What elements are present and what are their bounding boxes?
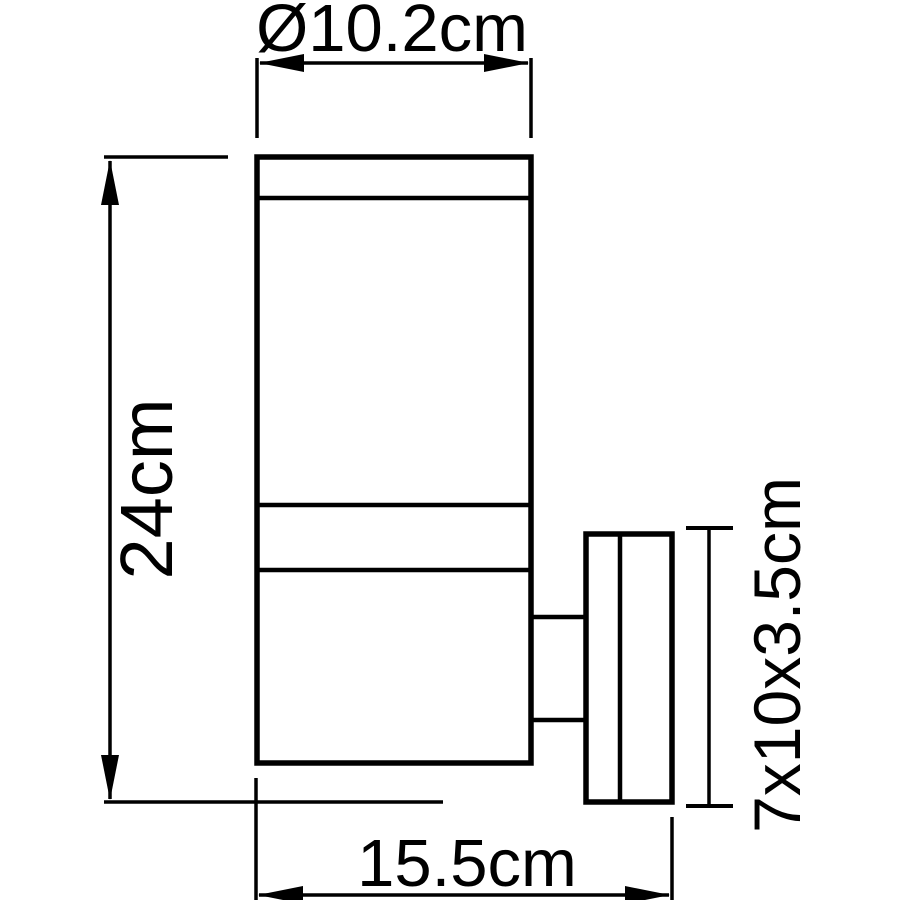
wall-bracket-outline [586, 534, 672, 802]
depth-dimension-label: 15.5cm [357, 826, 577, 900]
drawing-page: Ø10.2cm 24cm 15.5cm 7x10x3.5cm [0, 0, 900, 900]
arrowhead-down-icon [101, 755, 119, 800]
bracket-dimension-label: 7x10x3.5cm [740, 477, 814, 833]
fixture-outline-group [257, 157, 672, 802]
arrowhead-left-icon [258, 886, 303, 900]
cylinder-body-outline [257, 157, 531, 763]
height-dimension-label: 24cm [105, 399, 188, 580]
diameter-dimension-label: Ø10.2cm [256, 0, 528, 66]
arrowhead-up-icon [101, 160, 119, 205]
dimension-diameter [257, 54, 531, 138]
arrowhead-right-icon [625, 886, 670, 900]
dimension-bracket [686, 528, 733, 806]
technical-drawing-canvas: Ø10.2cm 24cm 15.5cm 7x10x3.5cm [0, 0, 900, 900]
